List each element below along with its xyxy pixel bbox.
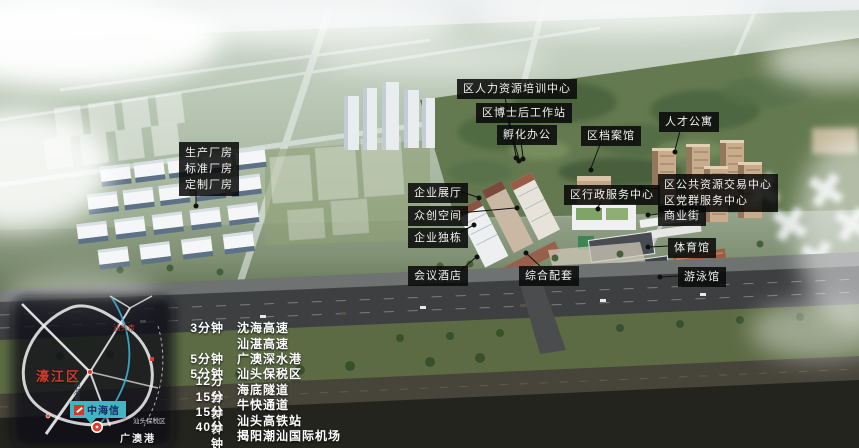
callout-hr-training: 区人力资源培训中心 [457,79,577,99]
brand-callout: 中海信 [70,401,126,418]
park-aerial-rendering: 生产厂房 标准厂房 定制厂房 区人力资源培训中心 区博士后工作站 孵化办公 区档… [0,0,859,448]
minimap-bonded-zone-label: 汕头保税区 [133,415,166,425]
callout-factory-line1: 生产厂房 [185,145,233,161]
callout-talent-apartment: 人才公寓 [659,112,719,132]
legend-dest: 揭阳潮汕国际机场 [237,427,341,444]
callout-postdoc: 区博士后工作站 [476,103,572,123]
callout-gymnasium: 体育馆 [668,238,716,258]
callout-makerspace: 众创空间 [408,206,468,226]
callout-factory-line2: 标准厂房 [185,161,233,177]
callout-hotel: 会议酒店 [408,266,468,286]
callout-swimming: 游泳馆 [678,267,726,287]
brand-name: 中海信 [87,402,120,417]
callout-incubation: 孵化办公 [497,125,557,145]
callout-factory-line3: 定制厂房 [185,177,233,193]
callout-amenities: 综合配套 [519,266,579,286]
zhonghaixin-logo-icon [74,405,84,415]
travel-time-legend: 3分钟沈海高速 汕湛高速 5分钟广澳深水港 5分钟汕头保税区 12分钟海底隧道 … [186,320,341,443]
legend-row: 汕湛高速 [186,335,341,350]
callout-exhibition: 企业展厅 [408,183,468,203]
minimap-city-label: 汕头市 [113,323,136,333]
legend-row: 40分钟揭阳潮汕国际机场 [186,428,341,443]
legend-time: 3分钟 [186,319,224,336]
callout-admin-center: 区行政服务中心 [564,185,660,205]
callout-commercial-street: 商业街 [658,206,706,226]
callout-factory: 生产厂房 标准厂房 定制厂房 [179,142,239,196]
legend-row: 3分钟沈海高速 [186,320,341,335]
callout-standalone: 企业独栋 [408,228,468,248]
minimap-port-label: 广澳港 [120,430,156,445]
callout-public-resource-line1: 区公共资源交易中心 [664,177,772,193]
legend-time: 40分钟 [186,418,224,448]
callout-archives: 区档案馆 [581,126,641,146]
legend-row: 5分钟广澳深水港 [186,351,341,366]
